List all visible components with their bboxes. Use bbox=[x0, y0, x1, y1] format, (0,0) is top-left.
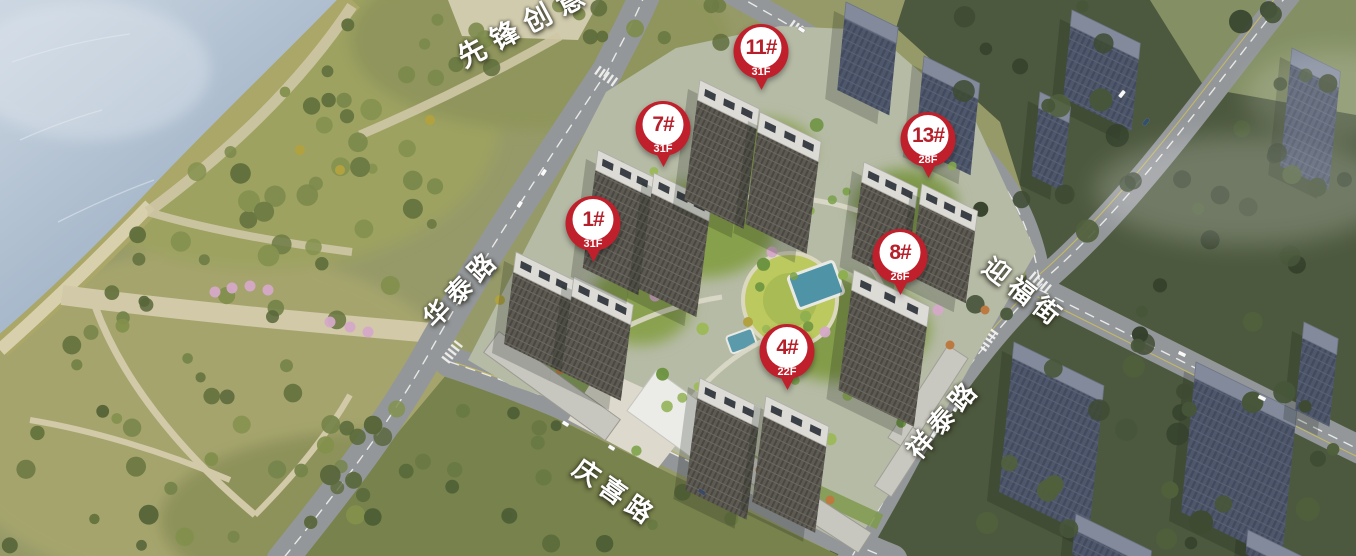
building-pin-1[interactable]: 1# 31F bbox=[566, 196, 621, 262]
pin-floors: 26F bbox=[873, 271, 928, 283]
building-pin-4[interactable]: 4# 22F bbox=[760, 324, 815, 390]
location-pin-icon: 11# 31F bbox=[734, 24, 789, 79]
pin-floors: 31F bbox=[566, 238, 621, 250]
location-pin-icon: 8# 26F bbox=[873, 229, 928, 284]
pin-number: 8# bbox=[880, 232, 921, 273]
location-pin-icon: 1# 31F bbox=[566, 196, 621, 251]
aerial-masterplan-view: { "pins": [ {"number": "1#", "floors": "… bbox=[0, 0, 1356, 556]
building-pin-13[interactable]: 13# 28F bbox=[901, 112, 956, 178]
building-pin-8[interactable]: 8# 26F bbox=[873, 229, 928, 295]
pin-floors: 31F bbox=[636, 143, 691, 155]
location-pin-icon: 4# 22F bbox=[760, 324, 815, 379]
location-pin-icon: 13# 28F bbox=[901, 112, 956, 167]
pin-floors: 22F bbox=[760, 366, 815, 378]
pin-number: 4# bbox=[767, 327, 808, 368]
pin-floors: 28F bbox=[901, 154, 956, 166]
building-pin-7[interactable]: 7# 31F bbox=[636, 101, 691, 167]
masterplan-render bbox=[0, 0, 1356, 556]
pin-number: 13# bbox=[908, 115, 949, 156]
pin-number: 7# bbox=[643, 104, 684, 145]
pin-floors: 31F bbox=[734, 66, 789, 78]
building-pin-11[interactable]: 11# 31F bbox=[734, 24, 789, 90]
location-pin-icon: 7# 31F bbox=[636, 101, 691, 156]
pin-number: 1# bbox=[573, 199, 614, 240]
pin-number: 11# bbox=[741, 27, 782, 68]
